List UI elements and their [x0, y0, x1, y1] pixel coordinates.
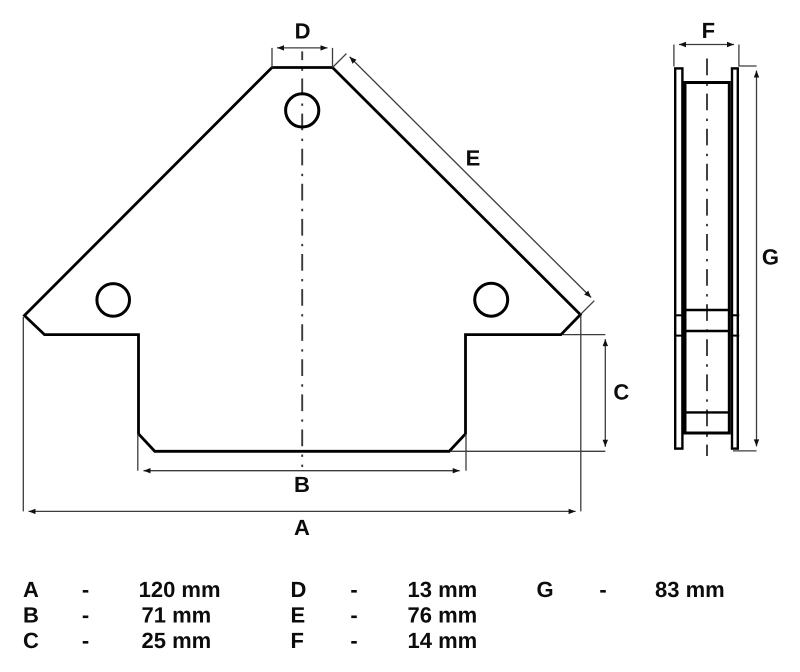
svg-text:-: - — [350, 577, 357, 602]
svg-text:76 mm: 76 mm — [408, 603, 478, 628]
svg-text:-: - — [350, 628, 357, 653]
svg-text:B: B — [294, 472, 310, 497]
svg-text:E: E — [466, 146, 481, 171]
svg-text:A: A — [23, 577, 39, 602]
svg-text:25 mm: 25 mm — [142, 628, 212, 653]
svg-text:120 mm: 120 mm — [139, 577, 221, 602]
svg-text:C: C — [23, 628, 39, 653]
svg-text:C: C — [613, 380, 629, 405]
svg-text:F: F — [702, 18, 715, 43]
svg-text:A: A — [294, 515, 310, 540]
svg-text:-: - — [350, 603, 357, 628]
svg-text:E: E — [291, 603, 306, 628]
svg-text:13 mm: 13 mm — [408, 577, 478, 602]
svg-text:83 mm: 83 mm — [655, 577, 725, 602]
svg-text:G: G — [762, 244, 779, 269]
svg-text:D: D — [295, 19, 311, 44]
svg-text:G: G — [537, 577, 554, 602]
svg-text:14 mm: 14 mm — [408, 628, 478, 653]
svg-text:B: B — [23, 603, 39, 628]
svg-text:-: - — [82, 577, 89, 602]
svg-text:D: D — [291, 577, 307, 602]
svg-text:-: - — [82, 628, 89, 653]
svg-text:71 mm: 71 mm — [142, 603, 212, 628]
svg-text:-: - — [599, 577, 606, 602]
svg-text:F: F — [291, 628, 304, 653]
svg-text:-: - — [82, 603, 89, 628]
